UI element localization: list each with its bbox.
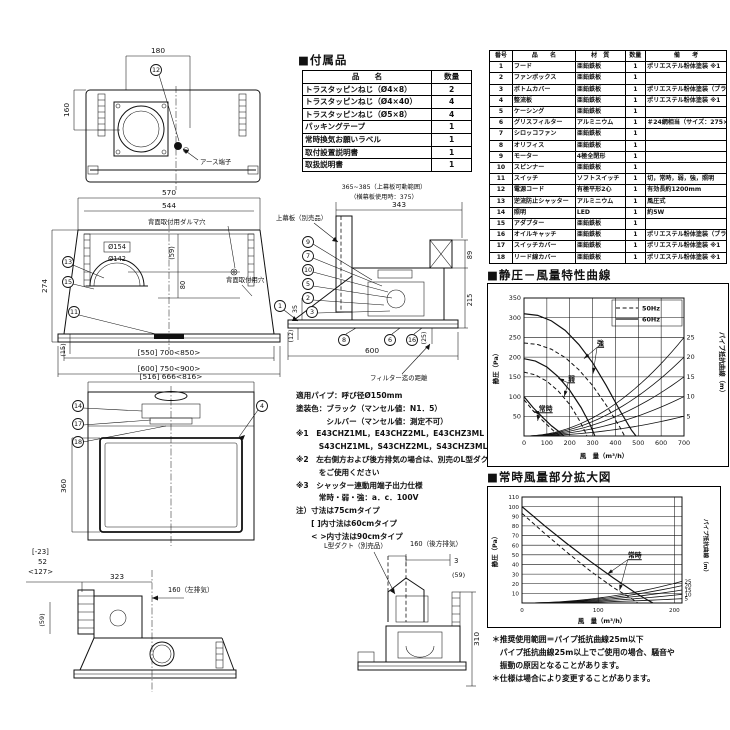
dim-range: 365~385（上幕板可動範囲） bbox=[342, 183, 427, 191]
svg-text:11: 11 bbox=[70, 308, 78, 316]
table-row: パッキングテープ1 bbox=[303, 121, 472, 134]
table-cell: モーター bbox=[512, 151, 575, 162]
callout-17: 17 bbox=[73, 419, 84, 430]
parts-table: 番号品 名材 質数量備 考1フード亜鉛鉄板1ポリエステル粉体塗装 ※12ファンボ… bbox=[489, 50, 727, 264]
table-cell: 約5W bbox=[646, 207, 727, 218]
dim-215: 215 bbox=[466, 294, 474, 307]
y-axis-label: 静圧（Pa） bbox=[490, 533, 499, 567]
pipe-curve-label: 20 bbox=[687, 353, 695, 361]
table-cell: 亜鉛鉄板 bbox=[575, 140, 625, 151]
dim-m23: [-23] bbox=[32, 548, 49, 556]
svg-text:9: 9 bbox=[306, 238, 310, 246]
front-view-drawing: 570 544 Ø154 Ø142 (59) 80 274 (15) 1 bbox=[28, 186, 293, 388]
column-header: 備 考 bbox=[646, 51, 727, 62]
table-cell bbox=[646, 73, 727, 84]
table-cell: 1 bbox=[625, 118, 646, 129]
table-cell: 1 bbox=[625, 207, 646, 218]
callout-15: 15 bbox=[63, 277, 74, 288]
svg-text:100: 100 bbox=[593, 608, 604, 614]
svg-text:300: 300 bbox=[586, 439, 598, 447]
table-cell: ポリエステル粉体塗装 ※1 bbox=[646, 62, 727, 73]
dim-160-left: 160（左排気） bbox=[168, 585, 214, 594]
table-cell: 1 bbox=[432, 146, 472, 159]
dim-570: 570 bbox=[162, 188, 176, 197]
table-cell: アルミニウム bbox=[575, 118, 625, 129]
table-cell: 1 bbox=[625, 241, 646, 252]
table-cell: 1 bbox=[432, 133, 472, 146]
accessories-title: ■付属品 bbox=[298, 52, 347, 68]
svg-text:90: 90 bbox=[512, 514, 520, 520]
dim-89: 89 bbox=[466, 251, 474, 259]
svg-text:13: 13 bbox=[64, 258, 72, 266]
table-cell: スピンナー bbox=[512, 163, 575, 174]
svg-text:100: 100 bbox=[509, 393, 521, 401]
callout-6: 6 bbox=[385, 335, 396, 346]
text-line: ＊仕様は場合により変更することがあります。 bbox=[492, 672, 728, 685]
table-row: トラスタッピンねじ（Ø5×8）4 bbox=[303, 108, 472, 121]
callout-7: 7 bbox=[303, 251, 314, 262]
text-line: 常時・弱・強：a．c．100V bbox=[296, 492, 488, 505]
table-cell: 亜鉛鉄板 bbox=[575, 163, 625, 174]
table-cell: 亜鉛鉄板 bbox=[575, 219, 625, 230]
pipe-curve-label: 25 bbox=[687, 333, 695, 341]
table-cell: リード線カバー bbox=[512, 252, 575, 263]
dim-12: (12) bbox=[288, 330, 295, 343]
pressure-flow-chart: 0100200300400500600700501001502002503003… bbox=[488, 284, 728, 466]
callout-13: 13 bbox=[63, 257, 74, 268]
svg-text:110: 110 bbox=[508, 495, 519, 501]
table-cell: 1 bbox=[625, 107, 646, 118]
table-cell bbox=[646, 140, 727, 151]
callout-14: 14 bbox=[73, 401, 84, 412]
series-強 60Hz bbox=[524, 314, 636, 436]
callout-5: 5 bbox=[303, 279, 314, 290]
table-cell: トラスタッピンねじ（Ø4×40） bbox=[303, 96, 432, 109]
table-cell: 10 bbox=[490, 163, 513, 174]
table-cell: ＃24網相当（サイズ：275×297） bbox=[646, 118, 727, 129]
table-cell: 有効長約1200mm bbox=[646, 185, 727, 196]
rear-exhaust-drawing: L型ダクト（別売品） 160（後方排気） 3 (59) 310 bbox=[298, 534, 490, 710]
table-cell: 14 bbox=[490, 207, 513, 218]
svg-text:1: 1 bbox=[278, 302, 282, 310]
svg-text:15: 15 bbox=[64, 278, 72, 286]
dim-127: <127> bbox=[28, 568, 53, 576]
svg-text:200: 200 bbox=[564, 439, 576, 447]
filter-distance-label: フィルター迄の距離 bbox=[370, 373, 428, 382]
table-cell: シロッコファン bbox=[512, 129, 575, 140]
table-cell: 1 bbox=[625, 151, 646, 162]
table-cell: 2 bbox=[490, 73, 513, 84]
series-常時 50Hz bbox=[522, 513, 638, 603]
table-cell: 1 bbox=[625, 196, 646, 207]
table-row: 18リード線カバー亜鉛鉄板1ポリエステル粉体塗装 ※1 bbox=[490, 252, 727, 263]
table-cell: 1 bbox=[625, 84, 646, 95]
dim-600: 600 bbox=[365, 346, 379, 355]
text-line: ※3 シャッター連動用端子出力仕様 bbox=[296, 480, 488, 493]
table-cell: 4極全閉形 bbox=[575, 151, 625, 162]
table-cell: 15 bbox=[490, 219, 513, 230]
pressure-chart-title: ■静圧－風量特性曲線 bbox=[487, 267, 611, 283]
table-cell: グリスフィルター bbox=[512, 118, 575, 129]
table-cell: 16 bbox=[490, 230, 513, 241]
table-cell: 17 bbox=[490, 241, 513, 252]
dim-range2: （横幕板使用時：375） bbox=[350, 193, 418, 201]
svg-text:20: 20 bbox=[512, 582, 520, 588]
text-line: ＊推奨使用範囲＝パイプ抵抗曲線25m以下 bbox=[492, 633, 728, 646]
table-cell: 1 bbox=[490, 62, 513, 73]
left-exhaust-drawing: [-23] 52 <127> 323 160（左排気） (59) bbox=[22, 542, 304, 704]
table-cell: 1 bbox=[625, 73, 646, 84]
svg-text:500: 500 bbox=[632, 439, 644, 447]
dim-59: (59) bbox=[168, 246, 176, 260]
table-cell: アダプター bbox=[512, 219, 575, 230]
table-cell: アルミニウム bbox=[575, 196, 625, 207]
dim-180: 180 bbox=[151, 46, 165, 55]
x-axis-label: 風 量（m³/h） bbox=[580, 451, 628, 460]
table-cell: 1 bbox=[625, 185, 646, 196]
y2-axis-label: パイプ抵抗曲線（m） bbox=[718, 332, 727, 396]
table-cell: 9 bbox=[490, 151, 513, 162]
table-cell: 取付設置説明書 bbox=[303, 146, 432, 159]
table-cell: ポリエステル粉体塗装（ブラック） bbox=[646, 230, 727, 241]
table-cell: 11 bbox=[490, 174, 513, 185]
dim-35: 35 bbox=[291, 305, 299, 313]
table-cell: 18 bbox=[490, 252, 513, 263]
curve-label: 強 bbox=[597, 338, 604, 347]
pipe-resistance-curve bbox=[522, 586, 682, 603]
table-cell: 4 bbox=[432, 96, 472, 109]
table-cell: トラスタッピンねじ（Ø5×8） bbox=[303, 108, 432, 121]
table-cell: スイッチカバー bbox=[512, 241, 575, 252]
svg-text:16: 16 bbox=[408, 336, 416, 344]
callout-3: 3 bbox=[307, 307, 318, 318]
dim-3: 3 bbox=[454, 557, 458, 565]
dim-274: 274 bbox=[40, 279, 49, 293]
svg-text:150: 150 bbox=[509, 373, 521, 381]
back-hole-label: 背面取付用穴 bbox=[226, 275, 265, 284]
svg-text:200: 200 bbox=[669, 608, 680, 614]
table-row: 14照明LED1約5W bbox=[490, 207, 727, 218]
svg-text:400: 400 bbox=[609, 439, 621, 447]
dim-25: (25) bbox=[421, 332, 428, 345]
table-cell bbox=[646, 219, 727, 230]
pipe-curve-label: 10 bbox=[687, 393, 695, 401]
x-axis-label: 風 量（m³/h） bbox=[578, 616, 626, 625]
table-cell: 切，常時，弱，強，照明 bbox=[646, 174, 727, 185]
text-line: 注）寸法は75cmタイプ bbox=[296, 505, 488, 518]
table-row: 5ケーシング亜鉛鉄板1 bbox=[490, 107, 727, 118]
pressure-chart-box: 0100200300400500600700501001502002503003… bbox=[487, 283, 729, 467]
table-row: 16オイルキャッチ亜鉛鉄板1ポリエステル粉体塗装（ブラック） bbox=[490, 230, 727, 241]
curve-label: 常時 bbox=[628, 551, 642, 560]
table-cell: 常時換気お願いラベル bbox=[303, 133, 432, 146]
table-row: 2ファンボックス亜鉛鉄板1 bbox=[490, 73, 727, 84]
svg-text:0: 0 bbox=[522, 439, 526, 447]
svg-text:8: 8 bbox=[342, 336, 346, 344]
text-line: ※2 左右側方および後方排気の場合は、別売のL型ダクト bbox=[296, 454, 488, 467]
svg-text:30: 30 bbox=[512, 572, 520, 578]
legend-label: 60Hz bbox=[642, 316, 660, 324]
svg-text:700: 700 bbox=[678, 439, 690, 447]
dim-544: 544 bbox=[162, 201, 176, 210]
table-cell: 亜鉛鉄板 bbox=[575, 62, 625, 73]
table-cell: 電源コード bbox=[512, 185, 575, 196]
callout-4: 4 bbox=[257, 401, 268, 412]
table-cell: ファンボックス bbox=[512, 73, 575, 84]
side-view-drawing: 365~385（上幕板可動範囲） （横幕板使用時：375） 343 上幕板（別売… bbox=[272, 180, 485, 392]
table-cell: 7 bbox=[490, 129, 513, 140]
column-header: 品 名 bbox=[303, 71, 432, 84]
table-cell: 亜鉛鉄板 bbox=[575, 107, 625, 118]
text-line: をご使用ください bbox=[296, 467, 488, 480]
table-cell: 逆流防止シャッター bbox=[512, 196, 575, 207]
table-cell: トラスタッピンねじ（Ø4×8） bbox=[303, 83, 432, 96]
enlarged-chart-box: 0100200102030405060708090100110510152025… bbox=[487, 486, 721, 628]
dim-59-left: (59) bbox=[38, 613, 46, 626]
dim-160: 160 bbox=[62, 103, 71, 117]
spec-text-block: 適用パイプ：呼び径Ø150mm塗装色：ブラック（マンセル値：N1．5） シルバー… bbox=[296, 390, 488, 544]
table-cell: ソフトスイッチ bbox=[575, 174, 625, 185]
accessories-table: 品 名数量トラスタッピンねじ（Ø4×8）2トラスタッピンねじ（Ø4×40）4トラ… bbox=[302, 70, 472, 172]
table-row: トラスタッピンねじ（Ø4×8）2 bbox=[303, 83, 472, 96]
table-cell: ポリエステル粉体塗装 ※1 bbox=[646, 252, 727, 263]
table-cell bbox=[646, 163, 727, 174]
table-row: 1フード亜鉛鉄板1ポリエステル粉体塗装 ※1 bbox=[490, 62, 727, 73]
table-cell: パッキングテープ bbox=[303, 121, 432, 134]
dim-52: 52 bbox=[38, 558, 47, 566]
callout-12: 12 bbox=[151, 65, 162, 76]
kamaita-label: 上幕板（別売品） bbox=[276, 213, 327, 222]
table-cell: スイッチ bbox=[512, 174, 575, 185]
table-cell: 亜鉛鉄板 bbox=[575, 241, 625, 252]
table-row: 15アダプター亜鉛鉄板1 bbox=[490, 219, 727, 230]
top-view-drawing: 180 160 12 アース端子 bbox=[28, 42, 293, 192]
dim-80: 80 bbox=[179, 281, 187, 289]
text-line: シルバー（マンセル値：測定不可） bbox=[296, 416, 488, 429]
svg-text:0: 0 bbox=[520, 608, 524, 614]
column-header: 数量 bbox=[432, 71, 472, 84]
svg-text:10: 10 bbox=[304, 266, 312, 274]
table-cell: 1 bbox=[625, 252, 646, 263]
svg-text:50: 50 bbox=[513, 412, 521, 420]
table-cell: 1 bbox=[625, 62, 646, 73]
svg-text:80: 80 bbox=[512, 524, 520, 530]
pipe-curve-label: 15 bbox=[687, 373, 695, 381]
y-axis-label: 静圧（Pa） bbox=[491, 350, 500, 384]
callout-10: 10 bbox=[303, 265, 314, 276]
table-cell: 1 bbox=[625, 129, 646, 140]
curve-label: 常時 bbox=[539, 404, 553, 413]
table-cell: 取扱説明書 bbox=[303, 159, 432, 172]
table-cell: 有極平形2心 bbox=[575, 185, 625, 196]
table-cell: 1 bbox=[625, 140, 646, 151]
dim-310: 310 bbox=[472, 632, 481, 646]
text-line: 適用パイプ：呼び径Ø150mm bbox=[296, 390, 488, 403]
table-cell: 1 bbox=[625, 163, 646, 174]
table-cell: 亜鉛鉄板 bbox=[575, 252, 625, 263]
pipe-curve-label: 25 bbox=[685, 579, 693, 585]
table-cell: 1 bbox=[432, 159, 472, 172]
svg-text:40: 40 bbox=[512, 563, 520, 569]
series-弱 50Hz bbox=[524, 372, 587, 436]
table-row: 11スイッチソフトスイッチ1切，常時，弱，強，照明 bbox=[490, 174, 727, 185]
table-cell: 照明 bbox=[512, 207, 575, 218]
callout-11: 11 bbox=[69, 307, 80, 318]
svg-text:100: 100 bbox=[541, 439, 553, 447]
table-cell: 整流板 bbox=[512, 95, 575, 106]
table-row: 3ボトムカバー亜鉛鉄板1ポリエステル粉体塗装（ブラック） bbox=[490, 84, 727, 95]
table-cell: 6 bbox=[490, 118, 513, 129]
svg-text:17: 17 bbox=[74, 420, 82, 428]
svg-text:12: 12 bbox=[152, 66, 160, 74]
svg-text:300: 300 bbox=[509, 314, 521, 322]
table-cell: 12 bbox=[490, 185, 513, 196]
table-cell: ボトムカバー bbox=[512, 84, 575, 95]
notes-block: ＊推奨使用範囲＝パイプ抵抗曲線25m以下 パイプ抵抗曲線25m以上でご使用の場合… bbox=[492, 633, 728, 685]
svg-text:14: 14 bbox=[74, 402, 82, 410]
text-line: パイプ抵抗曲線25m以上でご使用の場合、騒音や bbox=[492, 646, 728, 659]
table-row: 常時換気お願いラベル1 bbox=[303, 133, 472, 146]
table-cell: 1 bbox=[432, 121, 472, 134]
table-cell bbox=[646, 151, 727, 162]
dim-59-rear: (59) bbox=[452, 571, 465, 579]
table-row: 4整流板亜鉛鉄板1ポリエステル粉体塗装 ※1 bbox=[490, 95, 727, 106]
table-cell bbox=[646, 129, 727, 140]
callout-2: 2 bbox=[303, 293, 314, 304]
table-cell: 亜鉛鉄板 bbox=[575, 73, 625, 84]
table-cell: 亜鉛鉄板 bbox=[575, 129, 625, 140]
dim-323: 323 bbox=[110, 572, 124, 581]
text-line: ※1 E43CHZ1ML，E43CHZ2ML，E43CHZ3ML（ブラック） bbox=[296, 428, 488, 441]
svg-text:4: 4 bbox=[260, 402, 264, 410]
legend-label: 50Hz bbox=[642, 305, 660, 313]
table-cell: 5 bbox=[490, 107, 513, 118]
table-cell: 亜鉛鉄板 bbox=[575, 230, 625, 241]
dim-d154: Ø154 bbox=[108, 243, 126, 251]
curve-label: 弱 bbox=[568, 374, 575, 383]
table-cell: 1 bbox=[625, 219, 646, 230]
dim-360: 360 bbox=[59, 479, 68, 493]
table-row: 9モーター4極全閉形1 bbox=[490, 151, 727, 162]
enlarged-chart-title: ■常時風量部分拡大図 bbox=[487, 469, 611, 485]
table-row: 12電源コード有極平形2心1有効長約1200mm bbox=[490, 185, 727, 196]
text-line: 塗装色：ブラック（マンセル値：N1．5） bbox=[296, 403, 488, 416]
table-cell: 3 bbox=[490, 84, 513, 95]
spec-sheet: 180 160 12 アース端子 570 544 bbox=[0, 0, 730, 730]
column-header: 材 質 bbox=[575, 51, 625, 62]
table-row: トラスタッピンねじ（Ø4×40）4 bbox=[303, 96, 472, 109]
table-row: 13逆流防止シャッターアルミニウム1風圧式 bbox=[490, 196, 727, 207]
svg-text:18: 18 bbox=[74, 438, 82, 446]
svg-text:70: 70 bbox=[512, 534, 520, 540]
table-cell: 4 bbox=[490, 95, 513, 106]
table-row: 17スイッチカバー亜鉛鉄板1ポリエステル粉体塗装 ※1 bbox=[490, 241, 727, 252]
table-cell: オリフィス bbox=[512, 140, 575, 151]
table-row: 7シロッコファン亜鉛鉄板1 bbox=[490, 129, 727, 140]
svg-text:2: 2 bbox=[306, 294, 310, 302]
svg-text:60: 60 bbox=[512, 543, 520, 549]
table-cell: 13 bbox=[490, 196, 513, 207]
daruma-hole-label: 背面取付用ダルマ穴 bbox=[148, 217, 206, 226]
dim-d142: Ø142 bbox=[108, 255, 126, 263]
table-cell: ケーシング bbox=[512, 107, 575, 118]
pipe-curve-label: 5 bbox=[687, 412, 691, 420]
svg-text:100: 100 bbox=[508, 505, 519, 511]
table-cell: 1 bbox=[625, 95, 646, 106]
text-line: < >内寸法は90cmタイプ bbox=[296, 531, 488, 544]
column-header: 品 名 bbox=[512, 51, 575, 62]
table-cell: 4 bbox=[432, 108, 472, 121]
table-cell: ポリエステル粉体塗装（ブラック） bbox=[646, 84, 727, 95]
column-header: 番号 bbox=[490, 51, 513, 62]
y2-axis-label: パイプ抵抗曲線（m） bbox=[702, 519, 710, 575]
bottom-view-drawing: [516] 666<816> 360 14 17 18 4 bbox=[30, 366, 292, 548]
table-row: 取扱説明書1 bbox=[303, 159, 472, 172]
text-line: 振動の原因となることがあります。 bbox=[492, 659, 728, 672]
svg-text:200: 200 bbox=[509, 353, 521, 361]
table-cell: 風圧式 bbox=[646, 196, 727, 207]
svg-text:5: 5 bbox=[306, 280, 310, 288]
earth-terminal-label: アース端子 bbox=[200, 157, 232, 166]
callout-18: 18 bbox=[73, 437, 84, 448]
table-cell bbox=[646, 107, 727, 118]
dim-343: 343 bbox=[392, 200, 406, 209]
svg-text:50: 50 bbox=[512, 553, 520, 559]
svg-text:6: 6 bbox=[388, 336, 392, 344]
callout-16: 16 bbox=[407, 335, 418, 346]
dim-w1: [550] 700<850> bbox=[138, 348, 201, 357]
svg-text:10: 10 bbox=[512, 592, 520, 598]
table-row: 取付設置説明書1 bbox=[303, 146, 472, 159]
table-row: 10スピンナー亜鉛鉄板1 bbox=[490, 163, 727, 174]
callout-1: 1 bbox=[275, 301, 286, 312]
table-cell: ポリエステル粉体塗装 ※1 bbox=[646, 241, 727, 252]
column-header: 数量 bbox=[625, 51, 646, 62]
dim-15: (15) bbox=[59, 343, 67, 356]
svg-text:3: 3 bbox=[310, 308, 314, 316]
svg-text:7: 7 bbox=[306, 252, 310, 260]
svg-text:250: 250 bbox=[509, 334, 521, 342]
dim-w516: [516] 666<816> bbox=[140, 372, 203, 381]
table-cell: 1 bbox=[625, 230, 646, 241]
table-cell: 1 bbox=[625, 174, 646, 185]
table-cell: 2 bbox=[432, 83, 472, 96]
constant-flow-enlarged-chart: 0100200102030405060708090100110510152025… bbox=[488, 487, 720, 627]
callout-8: 8 bbox=[339, 335, 350, 346]
table-cell: ポリエステル粉体塗装 ※1 bbox=[646, 95, 727, 106]
table-cell: 亜鉛鉄板 bbox=[575, 84, 625, 95]
text-line: S43CHZ1ML，S43CHZ2ML，S43CHZ3ML（シルバー） bbox=[296, 441, 488, 454]
table-cell: 8 bbox=[490, 140, 513, 151]
table-row: 8オリフィス亜鉛鉄板1 bbox=[490, 140, 727, 151]
callout-9: 9 bbox=[303, 237, 314, 248]
svg-text:600: 600 bbox=[655, 439, 667, 447]
table-row: 6グリスフィルターアルミニウム1＃24網相当（サイズ：275×297） bbox=[490, 118, 727, 129]
svg-text:350: 350 bbox=[509, 294, 521, 302]
text-line: [ ]内寸法は60cmタイプ bbox=[296, 518, 488, 531]
table-cell: 亜鉛鉄板 bbox=[575, 95, 625, 106]
table-cell: LED bbox=[575, 207, 625, 218]
table-cell: オイルキャッチ bbox=[512, 230, 575, 241]
table-cell: フード bbox=[512, 62, 575, 73]
